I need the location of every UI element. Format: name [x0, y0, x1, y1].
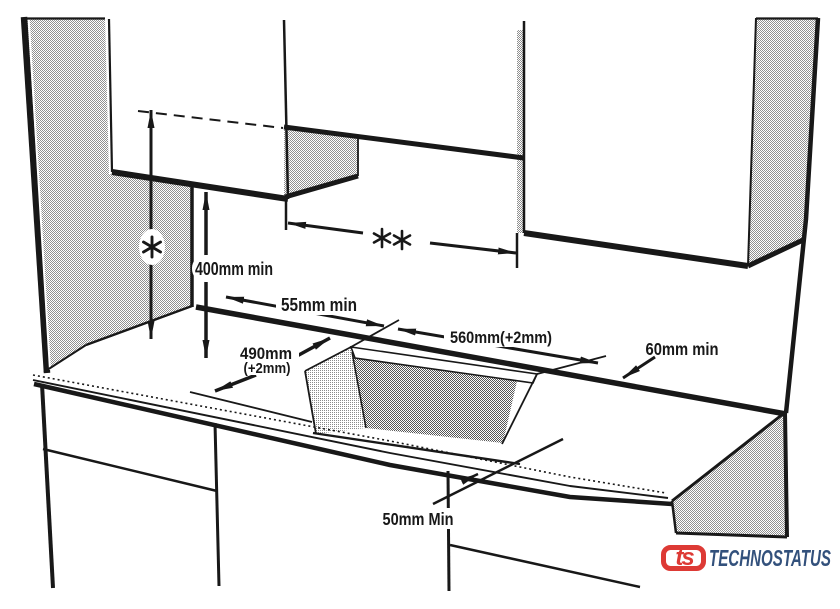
svg-text:(+2mm): (+2mm) [244, 360, 291, 377]
svg-text:55mm min: 55mm min [281, 295, 357, 315]
svg-text:560mm(+2mm): 560mm(+2mm) [450, 328, 552, 347]
svg-text:TECHNOSTATUS: TECHNOSTATUS [709, 545, 831, 571]
svg-text:60mm min: 60mm min [646, 339, 719, 359]
svg-text:50mm Min: 50mm Min [383, 509, 454, 529]
svg-text:400mm min: 400mm min [195, 259, 273, 279]
svg-text:ts: ts [675, 544, 694, 571]
